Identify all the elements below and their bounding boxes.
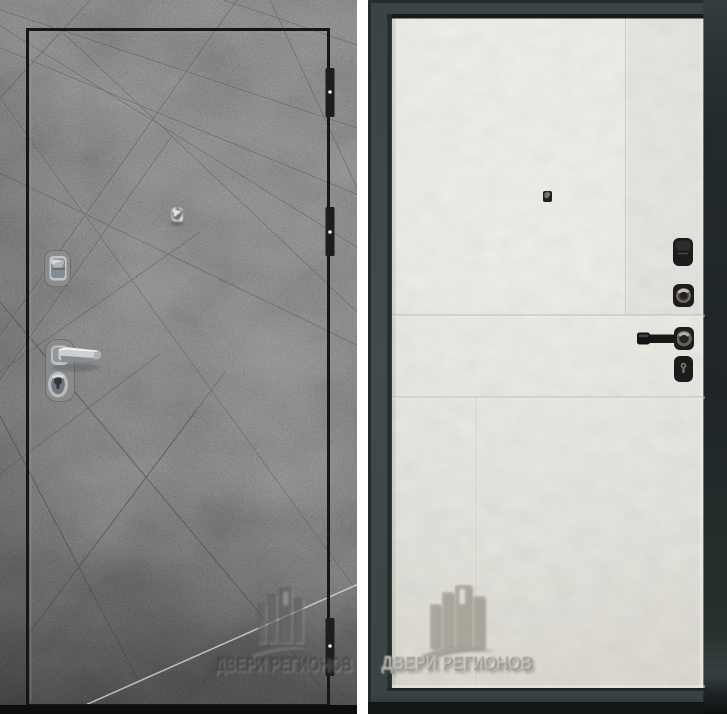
svg-text:ДВЕРИ РЕГИОНОВ: ДВЕРИ РЕГИОНОВ [215, 655, 352, 676]
svg-text:ДВЕРИ РЕГИОНОВ: ДВЕРИ РЕГИОНОВ [381, 652, 532, 674]
